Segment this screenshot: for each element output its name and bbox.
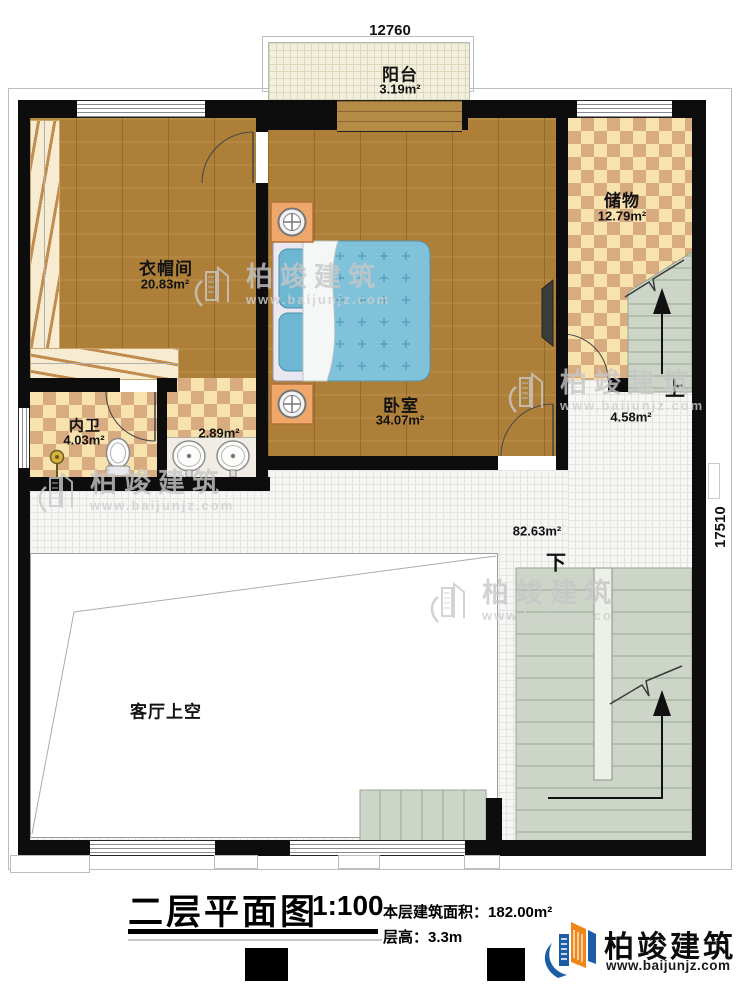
window [77, 100, 205, 118]
title-underline-shadow [128, 939, 382, 941]
column-marker [245, 948, 288, 981]
window [577, 100, 672, 118]
wall [256, 183, 268, 491]
floor-height-label: 层高： [383, 929, 428, 946]
wall [608, 378, 628, 392]
company-logo-url: www.baijunjz.com [606, 958, 731, 973]
wall [256, 118, 268, 132]
wall [18, 100, 30, 408]
sink [173, 441, 205, 477]
wall [157, 392, 167, 477]
room-area-hallway: 82.63m² [513, 524, 561, 539]
wall [692, 100, 706, 856]
nightstand [271, 202, 313, 242]
cloakroom-door [202, 132, 253, 183]
wall [18, 477, 270, 491]
sink [217, 441, 249, 477]
wall [268, 456, 498, 470]
nightstand [271, 384, 313, 424]
room-area-storage: 12.79m² [598, 209, 646, 224]
shower-head [51, 451, 64, 478]
wall [468, 100, 577, 118]
window [18, 408, 30, 468]
bed-sheet-fold [303, 241, 338, 381]
toilet [106, 439, 130, 477]
main-staircase [360, 568, 692, 842]
wall [486, 798, 502, 842]
stair-down-label: 下 [546, 547, 566, 576]
wall [18, 468, 30, 840]
floor-area-line: 本层建筑面积：182.00m² [383, 901, 552, 922]
stair-stringer [594, 568, 612, 780]
dimension-right: 17510 [712, 506, 729, 548]
room-area-balcony: 3.19m² [379, 82, 420, 97]
bedroom-door [501, 404, 553, 456]
floor-height-value: 3.3m [428, 929, 462, 946]
floor-area-label: 本层建筑面积： [383, 904, 488, 921]
column-marker [487, 948, 525, 981]
storage-staircase [625, 252, 692, 392]
room-area-cloakroom: 20.83m² [141, 277, 189, 292]
window [90, 840, 215, 856]
wall [556, 118, 568, 470]
floor-plan-page: { "dimensions": { "top": "12760", "right… [0, 0, 750, 990]
tv [542, 280, 553, 346]
wall [268, 100, 337, 130]
room-area-bedroom: 34.07m² [376, 413, 424, 428]
footing [338, 855, 380, 869]
floor-height-line: 层高：3.3m [383, 926, 462, 947]
room-area-vanity: 2.89m² [198, 426, 239, 441]
plan-scale: 1:100 [312, 890, 384, 922]
plan-title: 二层平面图 [128, 884, 318, 935]
wall [18, 378, 120, 392]
title-underline [128, 929, 378, 934]
wall [205, 100, 268, 118]
window [290, 840, 465, 856]
plan-vector-overlay [0, 0, 750, 880]
storage-door [562, 334, 608, 380]
footing [214, 855, 258, 869]
room-label-living-void: 客厅上空 [130, 698, 202, 723]
room-area-stair-hall: 4.58m² [610, 410, 651, 425]
dimension-top: 12760 [369, 22, 411, 39]
footing [10, 855, 90, 873]
stair-landing [360, 790, 486, 842]
room-area-bathroom: 4.03m² [63, 433, 104, 448]
bathroom-door [106, 392, 155, 441]
footing [464, 855, 500, 869]
stair-up-label: 上 [665, 373, 685, 402]
company-logo-icon [540, 914, 602, 982]
bed [273, 241, 430, 381]
wall [157, 378, 177, 392]
